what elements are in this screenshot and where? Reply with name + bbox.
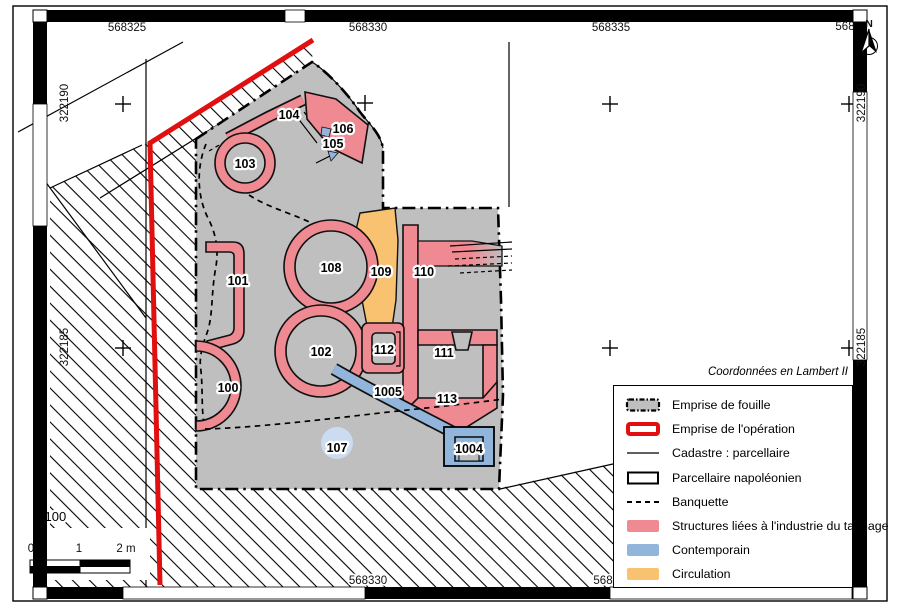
legend-label: Parcellaire napoléonien bbox=[672, 471, 802, 485]
feature-label-113: 113 bbox=[437, 392, 457, 406]
feature-label-104: 104 bbox=[279, 108, 300, 122]
coord-right-322185: 322185 bbox=[856, 328, 868, 366]
legend-label: Circulation bbox=[672, 567, 731, 581]
feature-label-112: 112 bbox=[374, 343, 394, 357]
coord-top-568335: 568335 bbox=[592, 22, 630, 34]
feature-label-101: 101 bbox=[228, 274, 249, 288]
feature-label-107: 107 bbox=[327, 441, 348, 455]
legend: Emprise de fouille Emprise de l'opératio… bbox=[613, 385, 853, 588]
cadastre-swatch-icon bbox=[625, 445, 661, 461]
coord-top-568340-clipped: 568 bbox=[835, 21, 854, 33]
coord-left-322185: 322185 bbox=[59, 328, 71, 366]
feature-label-105: 105 bbox=[323, 137, 344, 151]
tannage-swatch-icon bbox=[625, 518, 661, 534]
feature-label-102: 102 bbox=[311, 345, 332, 359]
coord-bottom-568335-clipped: 568 bbox=[593, 575, 612, 587]
operation-swatch-icon bbox=[625, 421, 661, 437]
structure-110-wall-left bbox=[403, 225, 418, 412]
coord-right-322190: 322190 bbox=[856, 84, 868, 122]
legend-row-fouille: Emprise de fouille bbox=[614, 393, 852, 417]
legend-label: Contemporain bbox=[672, 543, 750, 557]
legend-row-operation: Emprise de l'opération bbox=[614, 417, 852, 441]
legend-label: Banquette bbox=[672, 495, 729, 509]
coordinate-system-note: Coordonnées en Lambert II bbox=[613, 366, 848, 378]
fouille-swatch-icon bbox=[625, 397, 661, 413]
coord-top-568325: 568325 bbox=[108, 22, 146, 34]
legend-label: Emprise de fouille bbox=[672, 398, 770, 412]
coord-top-568330: 568330 bbox=[349, 22, 387, 34]
north-label: N bbox=[865, 18, 873, 30]
legend-label: Cadastre : parcellaire bbox=[672, 446, 790, 460]
contemporain-swatch-icon bbox=[625, 542, 661, 558]
legend-row-tannage: Structures liées à l'industrie du tannag… bbox=[614, 514, 852, 538]
legend-label: Emprise de l'opération bbox=[672, 422, 795, 436]
feature-label-103: 103 bbox=[235, 157, 256, 171]
legend-row-contemporain: Contemporain bbox=[614, 538, 852, 562]
feature-label-111: 111 bbox=[434, 346, 454, 360]
feature-label-1005: 1005 bbox=[374, 385, 402, 399]
site-plan-page: 100 101 102 103 104 105 106 107 108 109 … bbox=[0, 0, 900, 608]
scale-tick-1: 1 bbox=[76, 543, 82, 555]
legend-row-napoleonien: Parcellaire napoléonien bbox=[614, 466, 852, 490]
contemporain-105a bbox=[321, 127, 331, 137]
feature-label-106: 106 bbox=[333, 122, 354, 136]
feature-label-109: 109 bbox=[371, 265, 392, 279]
feature-label-100: 100 bbox=[218, 381, 239, 395]
coord-left-322190: 322190 bbox=[59, 84, 71, 122]
feature-label-108: 108 bbox=[321, 261, 342, 275]
coord-bottom-568330: 568330 bbox=[349, 575, 387, 587]
legend-label: Structures liées à l'industrie du tannag… bbox=[672, 519, 889, 533]
structure-111-notch bbox=[452, 332, 472, 350]
feature-label-110: 110 bbox=[414, 265, 434, 279]
scale-tick-2m: 2 m bbox=[116, 543, 135, 555]
napoleonien-swatch-icon bbox=[625, 470, 661, 486]
legend-row-banquette: Banquette bbox=[614, 490, 852, 514]
circulation-swatch-icon bbox=[625, 566, 661, 582]
feature-label-1004: 1004 bbox=[455, 442, 483, 456]
legend-row-cadastre: Cadastre : parcellaire bbox=[614, 441, 852, 465]
banquette-swatch-icon bbox=[625, 494, 661, 510]
structure-110-wall-top bbox=[418, 241, 502, 266]
legend-row-circulation: Circulation bbox=[614, 562, 852, 586]
